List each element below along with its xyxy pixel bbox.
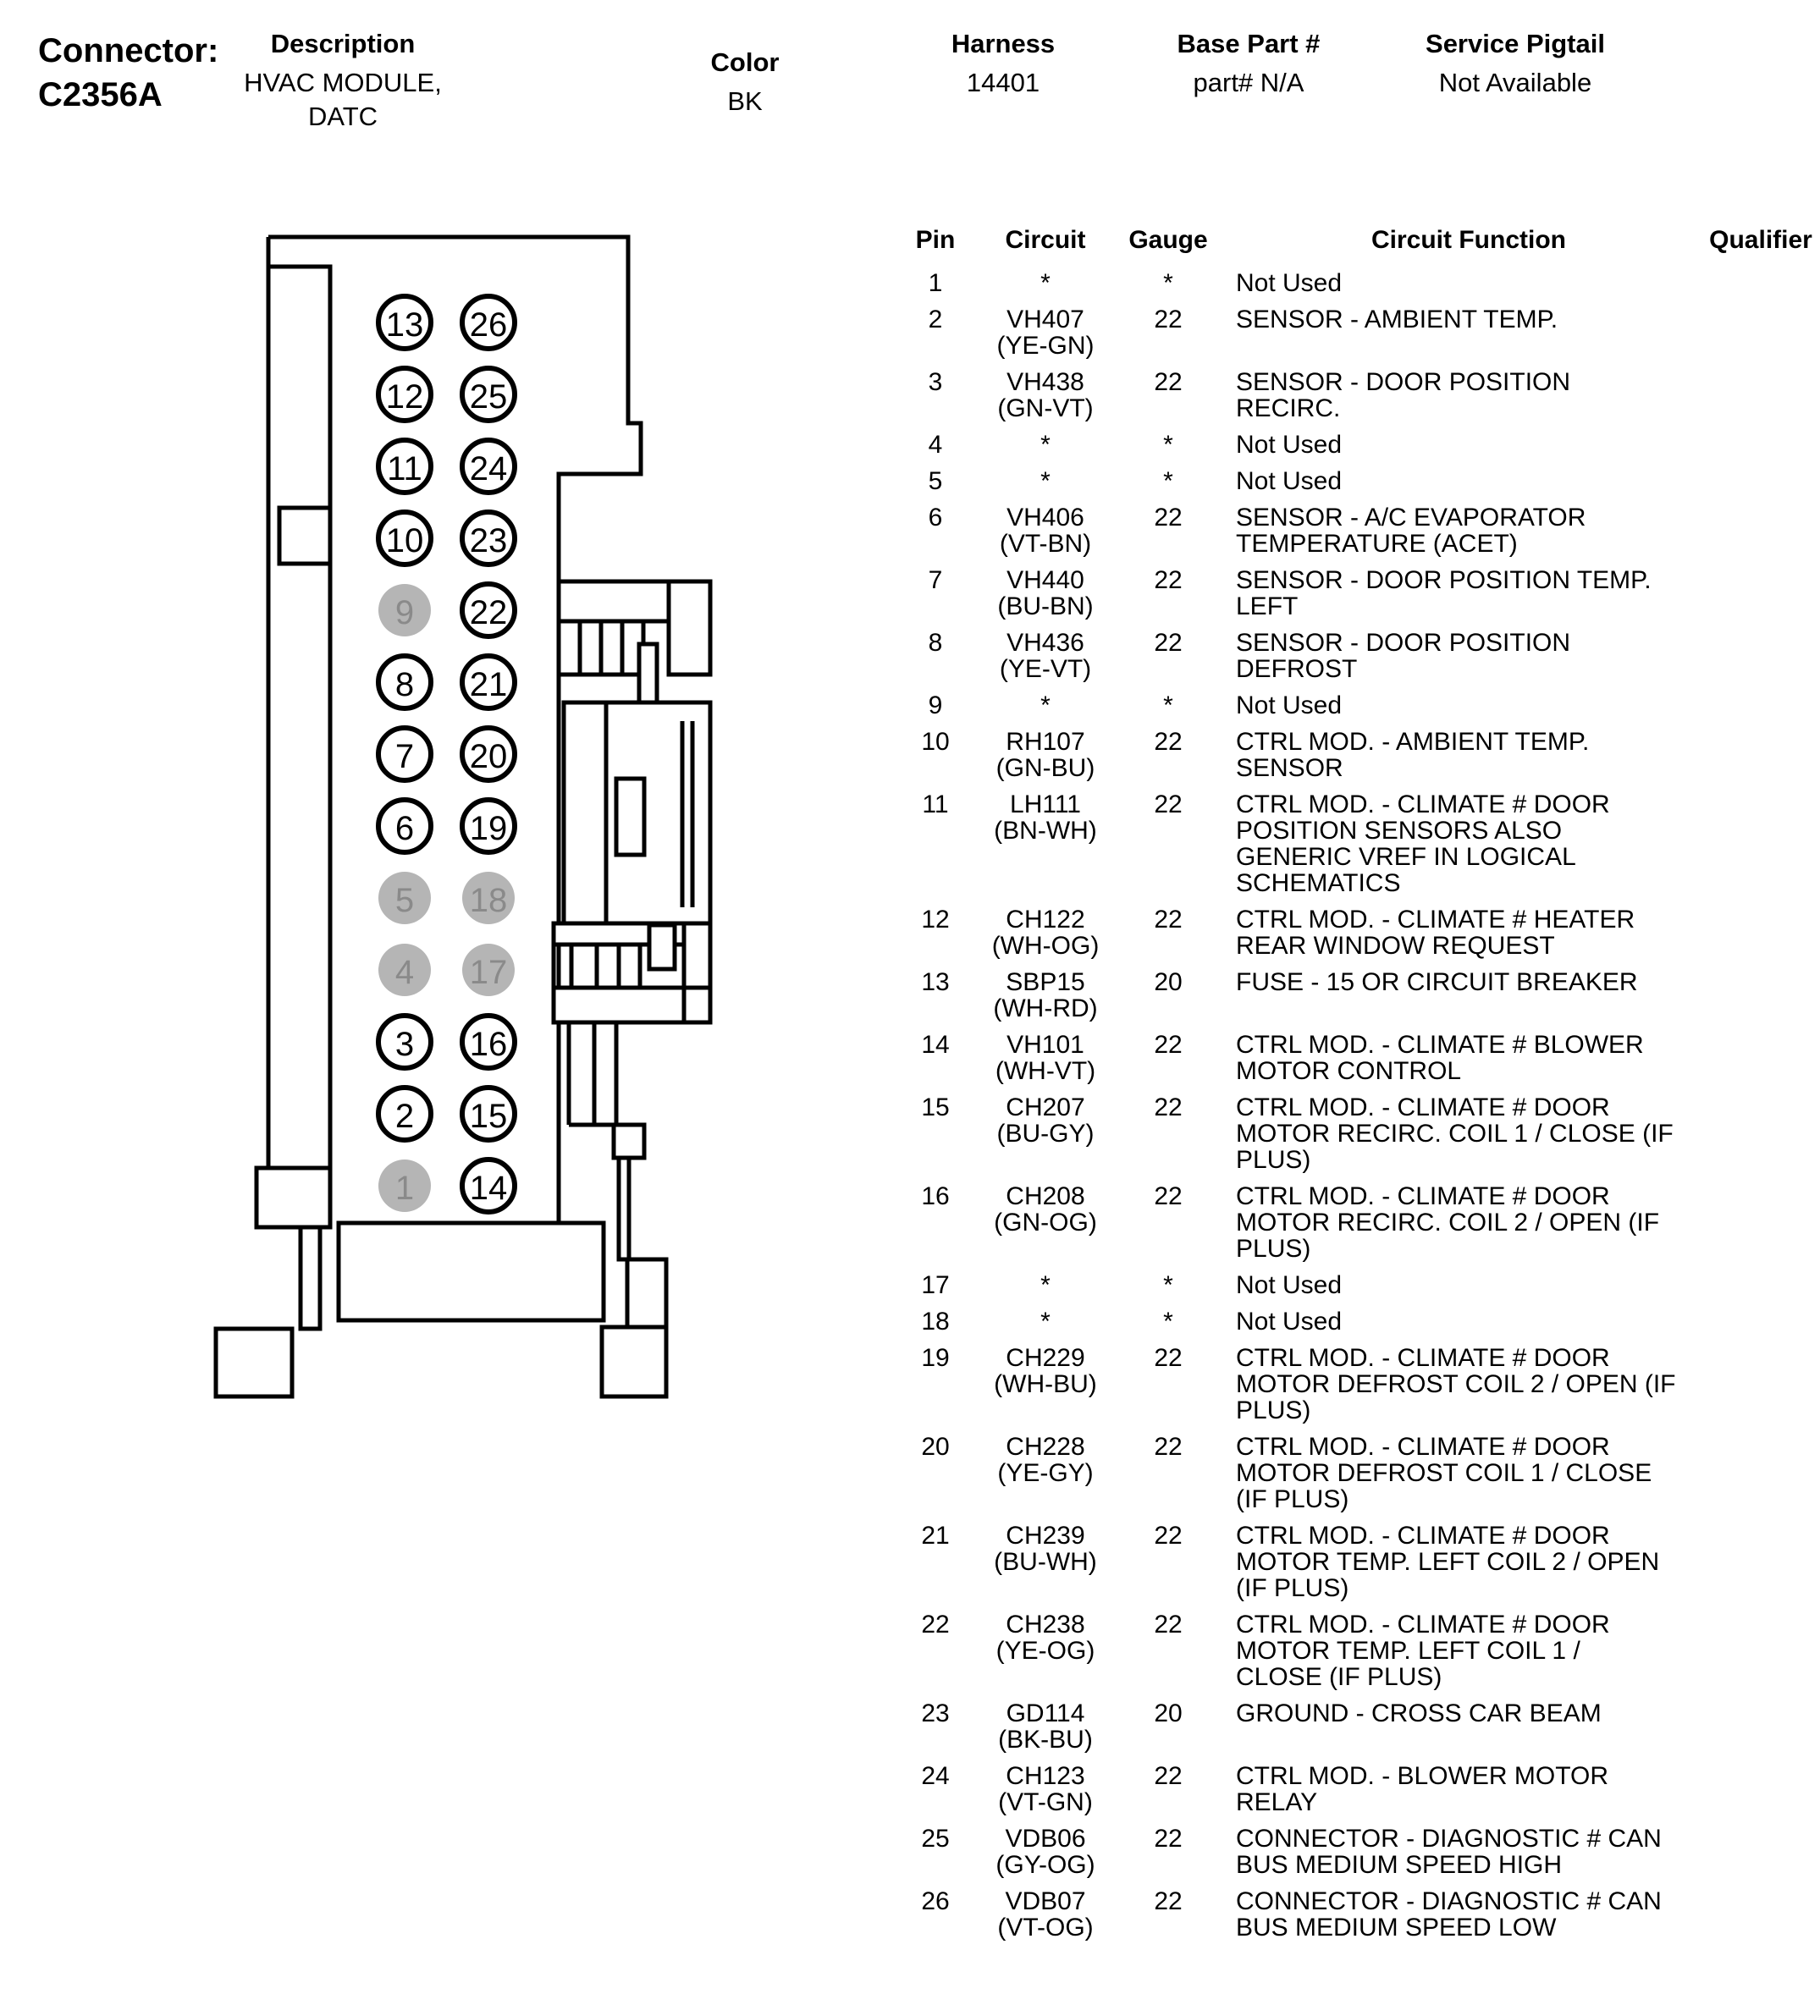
pin-5-label: 5 bbox=[395, 882, 414, 919]
circuit-function-cell: Not Used bbox=[1227, 270, 1701, 296]
table-row: 14VH101 (WH-VT)22CTRL MOD. - CLIMATE # B… bbox=[889, 1032, 1820, 1084]
pin-9-label: 9 bbox=[395, 594, 414, 631]
circuit-function-cell: CTRL MOD. - CLIMATE # DOOR MOTOR DEFROST… bbox=[1227, 1345, 1701, 1424]
harness-value: 14401 bbox=[967, 66, 1040, 100]
circuit-cell: * bbox=[982, 1308, 1109, 1335]
gauge-cell: 22 bbox=[1109, 1523, 1227, 1601]
qualifier-cell bbox=[1701, 969, 1820, 1022]
pin-1-label: 1 bbox=[395, 1170, 414, 1207]
qualifier-cell bbox=[1701, 791, 1820, 896]
gauge-cell: 22 bbox=[1109, 906, 1227, 959]
pin-number-cell: 14 bbox=[889, 1032, 982, 1084]
pin-18-label: 18 bbox=[470, 882, 508, 919]
circuit-cell: CH123 (VT-GN) bbox=[982, 1763, 1109, 1815]
qualifier-cell bbox=[1701, 1345, 1820, 1424]
circuit-cell: LH111 (BN-WH) bbox=[982, 791, 1109, 896]
connector-diagram: 1312111098765432126252423222120191817161… bbox=[195, 220, 736, 1422]
table-row: 6VH406 (VT-BN)22SENSOR - A/C EVAPORATOR … bbox=[889, 504, 1820, 557]
circuit-cell: * bbox=[982, 692, 1109, 719]
gauge-cell: 22 bbox=[1109, 630, 1227, 682]
pin-number-cell: 1 bbox=[889, 270, 982, 296]
header-circuit: Circuit bbox=[982, 227, 1109, 253]
table-row: 3VH438 (GN-VT)22SENSOR - DOOR POSITION R… bbox=[889, 369, 1820, 421]
gauge-cell: 22 bbox=[1109, 1434, 1227, 1512]
circuit-cell: CH122 (WH-OG) bbox=[982, 906, 1109, 959]
pin-21-label: 21 bbox=[470, 666, 508, 703]
circuit-cell: CH229 (WH-BU) bbox=[982, 1345, 1109, 1424]
table-row: 24CH123 (VT-GN)22CTRL MOD. - BLOWER MOTO… bbox=[889, 1763, 1820, 1815]
circuit-function-cell: SENSOR - A/C EVAPORATOR TEMPERATURE (ACE… bbox=[1227, 504, 1701, 557]
header-field-description: Description HVAC MODULE, DATC bbox=[216, 29, 470, 134]
gauge-cell: 22 bbox=[1109, 1763, 1227, 1815]
circuit-cell: * bbox=[982, 432, 1109, 458]
service-pigtail-label: Service Pigtail bbox=[1426, 29, 1605, 59]
table-row: 18**Not Used bbox=[889, 1308, 1820, 1335]
circuit-cell: * bbox=[982, 1272, 1109, 1298]
qualifier-cell bbox=[1701, 1094, 1820, 1173]
pin-23-label: 23 bbox=[470, 522, 508, 559]
pin-2-label: 2 bbox=[395, 1098, 414, 1135]
gauge-cell: 22 bbox=[1109, 1826, 1227, 1878]
table-row: 11LH111 (BN-WH)22CTRL MOD. - CLIMATE # D… bbox=[889, 791, 1820, 896]
header-qualifier: Qualifier bbox=[1701, 227, 1820, 253]
gauge-cell: * bbox=[1109, 1272, 1227, 1298]
table-row: 16CH208 (GN-OG)22CTRL MOD. - CLIMATE # D… bbox=[889, 1183, 1820, 1262]
qualifier-cell bbox=[1701, 692, 1820, 719]
table-row: 20CH228 (YE-GY)22CTRL MOD. - CLIMATE # D… bbox=[889, 1434, 1820, 1512]
pin-6-label: 6 bbox=[395, 810, 414, 847]
pin-13-label: 13 bbox=[386, 306, 424, 344]
qualifier-cell bbox=[1701, 630, 1820, 682]
gauge-cell: 22 bbox=[1109, 1183, 1227, 1262]
color-value: BK bbox=[727, 85, 762, 118]
qualifier-cell bbox=[1701, 1308, 1820, 1335]
gauge-cell: 22 bbox=[1109, 1094, 1227, 1173]
pin-number-cell: 11 bbox=[889, 791, 982, 896]
pin-20-label: 20 bbox=[470, 738, 508, 775]
qualifier-cell bbox=[1701, 1032, 1820, 1084]
pin-number-cell: 6 bbox=[889, 504, 982, 557]
pin-number-cell: 26 bbox=[889, 1888, 982, 1941]
right-leg-rails bbox=[569, 1022, 616, 1125]
lower-hook bbox=[649, 925, 675, 969]
table-row: 19CH229 (WH-BU)22CTRL MOD. - CLIMATE # D… bbox=[889, 1345, 1820, 1424]
header-field-base-part: Base Part # part# N/A bbox=[1147, 29, 1350, 100]
lower-comb-slats bbox=[554, 945, 643, 988]
qualifier-cell bbox=[1701, 1272, 1820, 1298]
circuit-function-cell: CTRL MOD. - AMBIENT TEMP. SENSOR bbox=[1227, 729, 1701, 781]
qualifier-cell bbox=[1701, 567, 1820, 620]
table-row: 13SBP15 (WH-RD)20FUSE - 15 OR CIRCUIT BR… bbox=[889, 969, 1820, 1022]
harness-label: Harness bbox=[951, 29, 1055, 59]
gauge-cell: * bbox=[1109, 432, 1227, 458]
circuit-cell: * bbox=[982, 468, 1109, 494]
gauge-cell: 22 bbox=[1109, 729, 1227, 781]
left-leg bbox=[301, 1227, 320, 1329]
table-row: 25VDB06 (GY-OG)22CONNECTOR - DIAGNOSTIC … bbox=[889, 1826, 1820, 1878]
pin-4-label: 4 bbox=[395, 954, 414, 991]
gauge-cell: 22 bbox=[1109, 369, 1227, 421]
header-field-harness: Harness 14401 bbox=[918, 29, 1088, 100]
upper-comb-end-block bbox=[669, 581, 710, 675]
table-row: 17**Not Used bbox=[889, 1272, 1820, 1298]
qualifier-cell bbox=[1701, 270, 1820, 296]
table-row: 22CH238 (YE-OG)22CTRL MOD. - CLIMATE # D… bbox=[889, 1611, 1820, 1690]
header-field-color: Color BK bbox=[669, 29, 821, 118]
circuit-function-cell: SENSOR - DOOR POSITION RECIRC. bbox=[1227, 369, 1701, 421]
gauge-cell: * bbox=[1109, 1308, 1227, 1335]
pin-table: Pin Circuit Gauge Circuit Function Quali… bbox=[889, 227, 1820, 1951]
lower-comb-end-block bbox=[684, 923, 710, 988]
right-foot bbox=[602, 1327, 666, 1396]
pin-11-label: 11 bbox=[387, 450, 422, 487]
circuit-cell: VDB07 (VT-OG) bbox=[982, 1888, 1109, 1941]
table-row: 8VH436 (YE-VT)22SENSOR - DOOR POSITION D… bbox=[889, 630, 1820, 682]
qualifier-cell bbox=[1701, 1700, 1820, 1753]
gauge-cell: * bbox=[1109, 468, 1227, 494]
side-block-latch bbox=[616, 779, 644, 855]
table-row: 12CH122 (WH-OG)22CTRL MOD. - CLIMATE # H… bbox=[889, 906, 1820, 959]
circuit-function-cell: CTRL MOD. - CLIMATE # DOOR MOTOR RECIRC.… bbox=[1227, 1094, 1701, 1173]
table-row: 7VH440 (BU-BN)22SENSOR - DOOR POSITION T… bbox=[889, 567, 1820, 620]
pin-number-cell: 15 bbox=[889, 1094, 982, 1173]
circuit-function-cell: CTRL MOD. - CLIMATE # DOOR POSITION SENS… bbox=[1227, 791, 1701, 896]
pin-7-label: 7 bbox=[395, 738, 414, 775]
pin-12-label: 12 bbox=[386, 378, 424, 416]
pin-24-label: 24 bbox=[470, 450, 508, 487]
circuit-cell: CH208 (GN-OG) bbox=[982, 1183, 1109, 1262]
table-row: 23GD114 (BK-BU)20GROUND - CROSS CAR BEAM bbox=[889, 1700, 1820, 1753]
gauge-cell: 22 bbox=[1109, 1032, 1227, 1084]
gauge-cell: 20 bbox=[1109, 969, 1227, 1022]
left-foot bbox=[216, 1329, 292, 1396]
circuit-function-cell: CTRL MOD. - CLIMATE # DOOR MOTOR TEMP. L… bbox=[1227, 1611, 1701, 1690]
gauge-cell: 20 bbox=[1109, 1700, 1227, 1753]
left-step-block bbox=[256, 1168, 330, 1227]
gauge-cell: * bbox=[1109, 692, 1227, 719]
pin-22-label: 22 bbox=[470, 594, 508, 631]
gauge-cell: 22 bbox=[1109, 306, 1227, 359]
circuit-function-cell: CONNECTOR - DIAGNOSTIC # CAN BUS MEDIUM … bbox=[1227, 1826, 1701, 1878]
circuit-function-cell: SENSOR - DOOR POSITION TEMP. LEFT bbox=[1227, 567, 1701, 620]
qualifier-cell bbox=[1701, 1888, 1820, 1941]
circuit-function-cell: FUSE - 15 OR CIRCUIT BREAKER bbox=[1227, 969, 1701, 1022]
circuit-function-cell: Not Used bbox=[1227, 1308, 1701, 1335]
gauge-cell: 22 bbox=[1109, 1888, 1227, 1941]
pin-number-cell: 17 bbox=[889, 1272, 982, 1298]
circuit-function-cell: SENSOR - AMBIENT TEMP. bbox=[1227, 306, 1701, 359]
circuit-function-cell: CTRL MOD. - BLOWER MOTOR RELAY bbox=[1227, 1763, 1701, 1815]
pin-number-cell: 13 bbox=[889, 969, 982, 1022]
circuit-function-cell: CTRL MOD. - CLIMATE # DOOR MOTOR TEMP. L… bbox=[1227, 1523, 1701, 1601]
circuit-function-cell: Not Used bbox=[1227, 692, 1701, 719]
table-row: 15CH207 (BU-GY)22CTRL MOD. - CLIMATE # D… bbox=[889, 1094, 1820, 1173]
gauge-cell: 22 bbox=[1109, 504, 1227, 557]
qualifier-cell bbox=[1701, 468, 1820, 494]
connector-label: Connector: bbox=[38, 29, 218, 73]
pin-26-label: 26 bbox=[470, 306, 508, 344]
pin-number-cell: 19 bbox=[889, 1345, 982, 1424]
housing-inner-channel bbox=[268, 267, 330, 1168]
right-leg bbox=[619, 1158, 629, 1259]
pin-16-label: 16 bbox=[470, 1026, 508, 1063]
qualifier-cell bbox=[1701, 504, 1820, 557]
pin-number-cell: 16 bbox=[889, 1183, 982, 1262]
description-label: Description bbox=[271, 29, 416, 59]
circuit-cell: VH436 (YE-VT) bbox=[982, 630, 1109, 682]
connector-id: C2356A bbox=[38, 73, 218, 117]
pin-10-label: 10 bbox=[386, 522, 424, 559]
upper-comb-slats bbox=[559, 621, 643, 675]
pin-number-cell: 21 bbox=[889, 1523, 982, 1601]
circuit-function-cell: Not Used bbox=[1227, 1272, 1701, 1298]
pin-number-cell: 5 bbox=[889, 468, 982, 494]
header-circuit-function: Circuit Function bbox=[1227, 227, 1701, 253]
pin-number-cell: 7 bbox=[889, 567, 982, 620]
pin-number-cell: 20 bbox=[889, 1434, 982, 1512]
pin-table-header: Pin Circuit Gauge Circuit Function Quali… bbox=[889, 227, 1820, 253]
pin-3-label: 3 bbox=[395, 1026, 414, 1063]
circuit-function-cell: CONNECTOR - DIAGNOSTIC # CAN BUS MEDIUM … bbox=[1227, 1888, 1701, 1941]
pin-8-label: 8 bbox=[395, 666, 414, 703]
circuit-cell: VH440 (BU-BN) bbox=[982, 567, 1109, 620]
base-block bbox=[339, 1223, 604, 1320]
table-row: 21CH239 (BU-WH)22CTRL MOD. - CLIMATE # D… bbox=[889, 1523, 1820, 1601]
pin-19-label: 19 bbox=[470, 810, 508, 847]
circuit-cell: CH239 (BU-WH) bbox=[982, 1523, 1109, 1601]
description-value: HVAC MODULE, DATC bbox=[244, 66, 442, 134]
pin-number-cell: 12 bbox=[889, 906, 982, 959]
connector-title: Connector: C2356A bbox=[38, 29, 218, 117]
circuit-cell: VH406 (VT-BN) bbox=[982, 504, 1109, 557]
header-pin: Pin bbox=[889, 227, 982, 253]
table-row: 5**Not Used bbox=[889, 468, 1820, 494]
circuit-cell: GD114 (BK-BU) bbox=[982, 1700, 1109, 1753]
pin-14-label: 14 bbox=[470, 1170, 508, 1207]
housing-left-notch bbox=[279, 508, 330, 564]
circuit-cell: RH107 (GN-BU) bbox=[982, 729, 1109, 781]
table-row: 10RH107 (GN-BU)22CTRL MOD. - AMBIENT TEM… bbox=[889, 729, 1820, 781]
pin-table-body: 1**Not Used2VH407 (YE-GN)22SENSOR - AMBI… bbox=[889, 270, 1820, 1941]
pin-15-label: 15 bbox=[470, 1098, 508, 1135]
pin-number-cell: 22 bbox=[889, 1611, 982, 1690]
gauge-cell: 22 bbox=[1109, 1345, 1227, 1424]
pin-number-cell: 23 bbox=[889, 1700, 982, 1753]
qualifier-cell bbox=[1701, 1826, 1820, 1878]
qualifier-cell bbox=[1701, 369, 1820, 421]
pin-number-cell: 8 bbox=[889, 630, 982, 682]
circuit-function-cell: Not Used bbox=[1227, 468, 1701, 494]
circuit-function-cell: SENSOR - DOOR POSITION DEFROST bbox=[1227, 630, 1701, 682]
right-foot-upper bbox=[627, 1259, 666, 1327]
table-row: 4**Not Used bbox=[889, 432, 1820, 458]
qualifier-cell bbox=[1701, 1763, 1820, 1815]
qualifier-cell bbox=[1701, 1611, 1820, 1690]
pin-number-cell: 2 bbox=[889, 306, 982, 359]
qualifier-cell bbox=[1701, 1434, 1820, 1512]
base-part-value: part# N/A bbox=[1194, 66, 1304, 100]
circuit-cell: VDB06 (GY-OG) bbox=[982, 1826, 1109, 1878]
circuit-function-cell: CTRL MOD. - CLIMATE # DOOR MOTOR RECIRC.… bbox=[1227, 1183, 1701, 1262]
bottom-plate-end bbox=[684, 988, 710, 1022]
table-row: 1**Not Used bbox=[889, 270, 1820, 296]
color-label: Color bbox=[711, 47, 780, 78]
right-leg-step bbox=[614, 1125, 644, 1158]
pin-number-cell: 3 bbox=[889, 369, 982, 421]
table-row: 2VH407 (YE-GN)22SENSOR - AMBIENT TEMP. bbox=[889, 306, 1820, 359]
pin-number-cell: 25 bbox=[889, 1826, 982, 1878]
circuit-cell: VH101 (WH-VT) bbox=[982, 1032, 1109, 1084]
header-gauge: Gauge bbox=[1109, 227, 1227, 253]
qualifier-cell bbox=[1701, 729, 1820, 781]
circuit-cell: CH228 (YE-GY) bbox=[982, 1434, 1109, 1512]
base-part-label: Base Part # bbox=[1177, 29, 1321, 59]
table-row: 9**Not Used bbox=[889, 692, 1820, 719]
header-field-service-pigtail: Service Pigtail Not Available bbox=[1405, 29, 1625, 100]
circuit-function-cell: CTRL MOD. - CLIMATE # HEATER REAR WINDOW… bbox=[1227, 906, 1701, 959]
qualifier-cell bbox=[1701, 1523, 1820, 1601]
pin-number-cell: 10 bbox=[889, 729, 982, 781]
pin-number-cell: 24 bbox=[889, 1763, 982, 1815]
gauge-cell: 22 bbox=[1109, 791, 1227, 896]
qualifier-cell bbox=[1701, 306, 1820, 359]
gauge-cell: 22 bbox=[1109, 567, 1227, 620]
bottom-plate bbox=[554, 988, 684, 1022]
circuit-function-cell: CTRL MOD. - CLIMATE # BLOWER MOTOR CONTR… bbox=[1227, 1032, 1701, 1084]
circuit-cell: CH238 (YE-OG) bbox=[982, 1611, 1109, 1690]
gauge-cell: 22 bbox=[1109, 1611, 1227, 1690]
circuit-function-cell: Not Used bbox=[1227, 432, 1701, 458]
pin-number-cell: 18 bbox=[889, 1308, 982, 1335]
circuit-function-cell: CTRL MOD. - CLIMATE # DOOR MOTOR DEFROST… bbox=[1227, 1434, 1701, 1512]
qualifier-cell bbox=[1701, 1183, 1820, 1262]
pin-number-cell: 9 bbox=[889, 692, 982, 719]
pin-grid: 1312111098765432126252423222120191817161… bbox=[378, 296, 515, 1212]
circuit-cell: VH438 (GN-VT) bbox=[982, 369, 1109, 421]
circuit-function-cell: GROUND - CROSS CAR BEAM bbox=[1227, 1700, 1701, 1753]
qualifier-cell bbox=[1701, 432, 1820, 458]
pin-25-label: 25 bbox=[470, 378, 508, 416]
pin-number-cell: 4 bbox=[889, 432, 982, 458]
pin-17-label: 17 bbox=[470, 954, 508, 991]
qualifier-cell bbox=[1701, 906, 1820, 959]
circuit-cell: * bbox=[982, 270, 1109, 296]
service-pigtail-value: Not Available bbox=[1439, 66, 1591, 100]
circuit-cell: SBP15 (WH-RD) bbox=[982, 969, 1109, 1022]
gauge-cell: * bbox=[1109, 270, 1227, 296]
circuit-cell: CH207 (BU-GY) bbox=[982, 1094, 1109, 1173]
table-row: 26VDB07 (VT-OG)22CONNECTOR - DIAGNOSTIC … bbox=[889, 1888, 1820, 1941]
circuit-cell: VH407 (YE-GN) bbox=[982, 306, 1109, 359]
